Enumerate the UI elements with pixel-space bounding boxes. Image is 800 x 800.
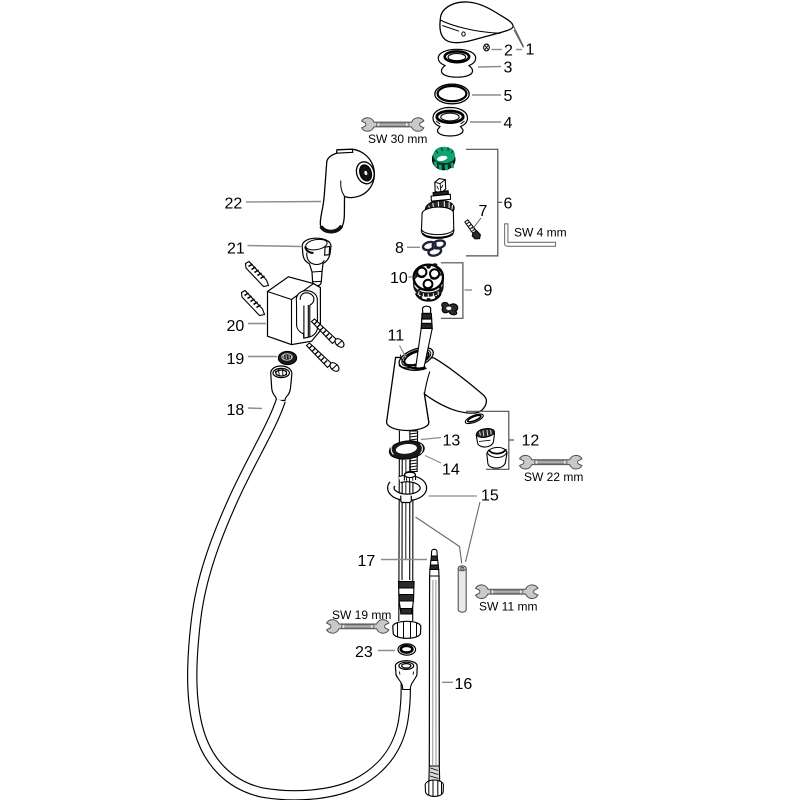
- svg-text:5: 5: [504, 88, 513, 105]
- svg-text:SW 4 mm: SW 4 mm: [514, 226, 567, 240]
- svg-text:10: 10: [390, 270, 408, 287]
- svg-text:17: 17: [358, 553, 376, 570]
- svg-text:21: 21: [227, 241, 245, 258]
- svg-text:11: 11: [388, 328, 405, 345]
- svg-text:13: 13: [443, 433, 461, 450]
- svg-text:7: 7: [479, 203, 488, 220]
- svg-text:14: 14: [442, 462, 460, 479]
- svg-text:18: 18: [227, 402, 245, 419]
- svg-text:SW 11 mm: SW 11 mm: [479, 600, 537, 614]
- svg-text:SW 19 mm: SW 19 mm: [332, 608, 391, 622]
- svg-text:3: 3: [504, 60, 513, 77]
- svg-text:2: 2: [504, 43, 513, 60]
- svg-text:23: 23: [355, 644, 373, 661]
- svg-text:9: 9: [484, 283, 493, 300]
- svg-text:4: 4: [504, 115, 513, 132]
- svg-text:SW 30 mm: SW 30 mm: [368, 132, 427, 146]
- svg-text:15: 15: [481, 488, 499, 505]
- svg-text:6: 6: [504, 196, 513, 213]
- svg-text:1: 1: [526, 42, 535, 59]
- svg-text:12: 12: [522, 433, 540, 450]
- svg-text:16: 16: [455, 676, 473, 693]
- svg-text:SW 22 mm: SW 22 mm: [524, 470, 583, 484]
- svg-text:19: 19: [227, 351, 245, 368]
- svg-text:20: 20: [227, 318, 245, 335]
- svg-text:22: 22: [225, 196, 243, 213]
- svg-text:8: 8: [395, 240, 404, 257]
